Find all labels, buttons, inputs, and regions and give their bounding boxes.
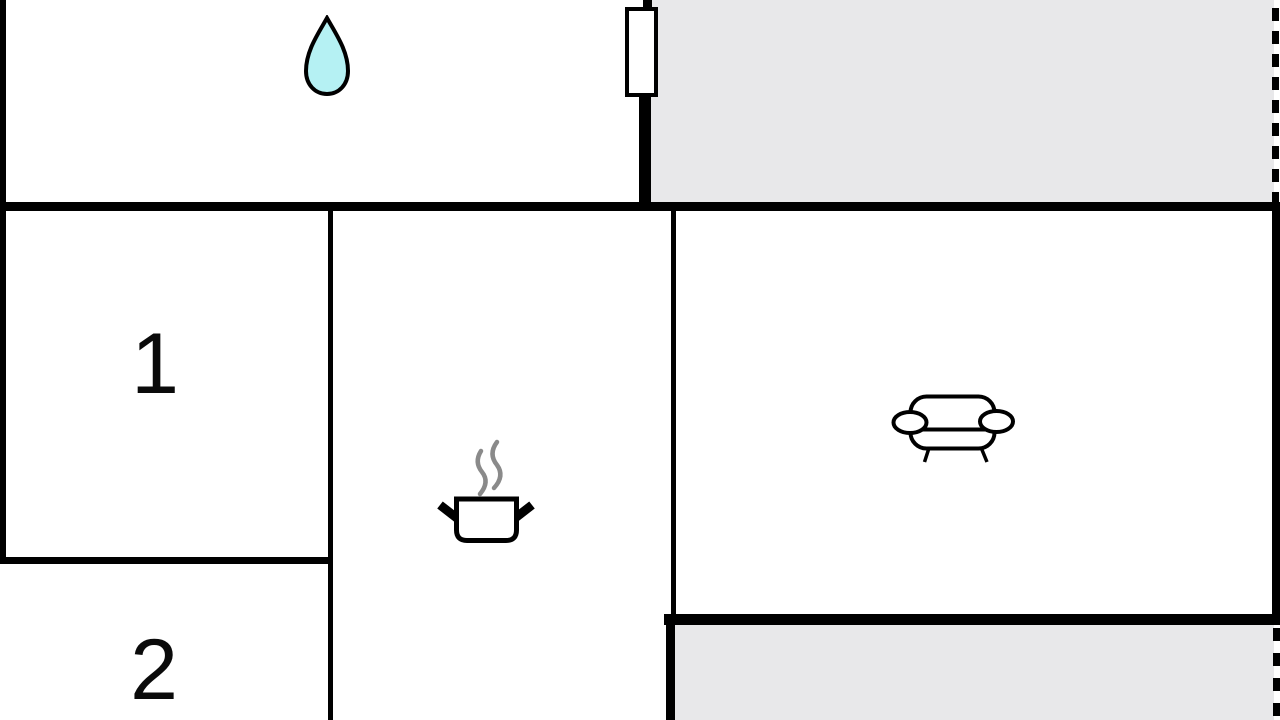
wall-left xyxy=(0,0,6,564)
water-drop-icon xyxy=(303,15,351,97)
floorplan-canvas: 1 2 xyxy=(0,0,1280,720)
radiator-icon xyxy=(625,7,658,97)
pot-body xyxy=(457,499,517,541)
sofa-armrest-right xyxy=(980,411,1013,432)
sofa-armrest-left xyxy=(894,412,927,433)
room-2-label: 2 xyxy=(54,604,254,720)
terrace-area-top xyxy=(650,0,1274,202)
wall-livingroom-bottom xyxy=(664,614,1280,625)
sofa-icon xyxy=(888,390,1022,468)
wall-radiator-lower xyxy=(639,93,651,207)
wall-right xyxy=(1272,202,1280,622)
cooking-pot-icon xyxy=(435,433,535,545)
room-1-label: 1 xyxy=(55,298,255,430)
wall-livingroom-left xyxy=(671,206,676,622)
dashed-boundary-bottom-right xyxy=(1273,628,1280,720)
wall-center-vertical xyxy=(328,202,333,720)
steam-lines xyxy=(478,442,501,494)
wall-terrace-bottom-left xyxy=(666,614,675,720)
dashed-boundary-top-right xyxy=(1272,8,1279,202)
terrace-area-bottom xyxy=(675,623,1274,720)
wall-bedroom-divider xyxy=(0,557,333,564)
